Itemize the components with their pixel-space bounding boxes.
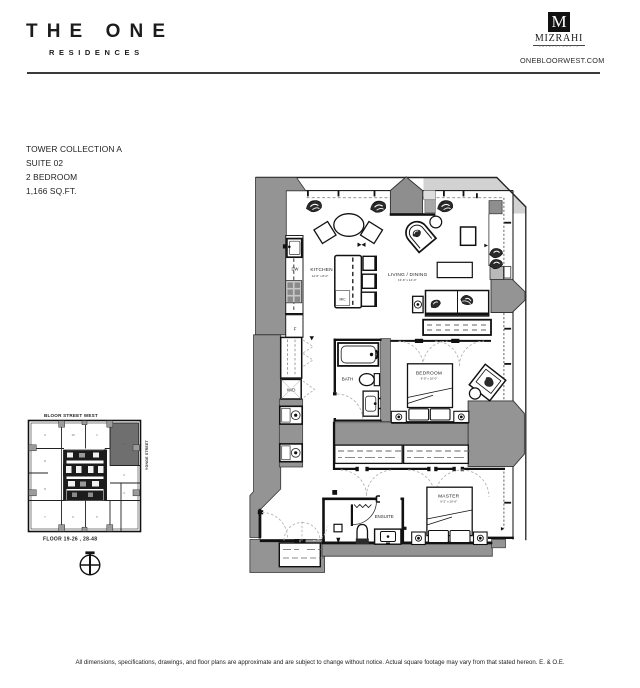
svg-text:BLOOR STREET WEST: BLOOR STREET WEST [44, 413, 98, 418]
svg-text:BEDROOM: BEDROOM [416, 370, 442, 376]
svg-text:LIVING / DINING: LIVING / DINING [388, 272, 428, 278]
svg-text:KITCHEN: KITCHEN [310, 267, 333, 273]
svg-text:DW: DW [292, 267, 299, 272]
svg-text:MASTER: MASTER [438, 493, 460, 499]
svg-text:13'-6" x 14'-0": 13'-6" x 14'-0" [398, 278, 416, 282]
svg-text:FLOOR 19-26 , 28-48: FLOOR 19-26 , 28-48 [43, 537, 97, 543]
svg-text:9'-2" x 10'-6": 9'-2" x 10'-6" [440, 500, 457, 504]
svg-text:ENSUITE: ENSUITE [375, 514, 394, 519]
svg-text:9'-0" x 10'-0": 9'-0" x 10'-0" [421, 377, 438, 381]
svg-text:F: F [294, 327, 297, 332]
svg-text:YONGE STREET: YONGE STREET [145, 440, 149, 470]
svg-text:W/D: W/D [287, 388, 296, 393]
svg-text:14'-0" x 8'-0": 14'-0" x 8'-0" [312, 274, 329, 278]
svg-text:BATH: BATH [342, 376, 353, 381]
svg-text:MIC: MIC [339, 297, 346, 301]
